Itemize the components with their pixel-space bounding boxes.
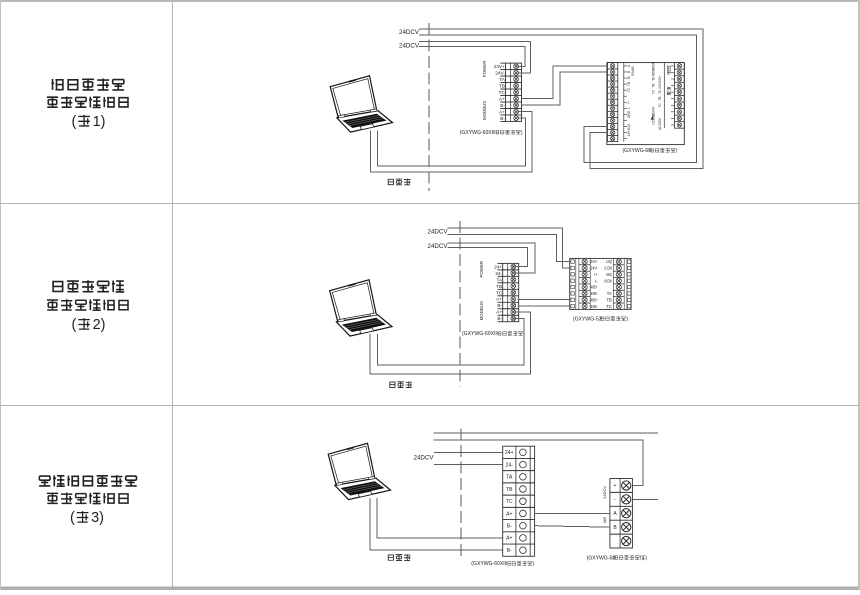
svg-text:A+: A+ [496,297,502,302]
svg-text:TA: TA [506,475,513,481]
svg-text:485+: 485+ [590,285,598,290]
svg-text:TA: TA [496,277,503,282]
svg-text:MODBUS: MODBUS [482,101,487,120]
svg-text:(: ( [70,510,75,526]
svg-text:HCOM: HCOM [604,278,612,283]
svg-text:): ) [645,555,647,561]
svg-text:A+: A+ [506,536,512,542]
svg-text:TC: TC [506,499,513,505]
svg-text:485+: 485+ [590,297,598,302]
svg-text:): ) [676,148,678,154]
svg-text:POWER: POWER [479,261,484,278]
svg-text:485B: 485B [652,69,656,76]
svg-text:I+: I+ [594,272,598,277]
svg-text:24DCV: 24DCV [399,29,420,36]
svg-text:): ) [533,561,535,567]
svg-text:POWER: POWER [482,61,487,78]
svg-text:MODBUS: MODBUS [479,301,484,320]
svg-text:485: 485 [602,516,607,523]
svg-text:24V-: 24V- [627,123,631,130]
svg-text:+: + [614,483,617,489]
svg-text:24DCV: 24DCV [414,454,435,461]
svg-text:24DCV: 24DCV [428,228,449,235]
svg-text:TC: TC [627,87,631,92]
svg-text:(: ( [71,317,76,333]
svg-text:I+: I+ [627,101,631,104]
svg-text:24+: 24+ [494,264,502,269]
svg-text:TB: TB [506,487,513,493]
svg-text:TA: TA [499,77,506,82]
svg-text:AC220V: AC220V [658,117,662,130]
svg-text:B-: B- [497,303,502,308]
svg-text:24V-: 24V- [590,266,598,271]
svg-text:TC: TC [658,102,662,107]
svg-text:B-: B- [500,116,505,121]
svg-text:2): 2) [93,317,106,333]
svg-text:24DCV: 24DCV [399,43,420,50]
svg-text:(GXYWG-60XII: (GXYWG-60XII [471,561,506,567]
svg-text:24-: 24- [495,271,502,276]
svg-text:24DCV: 24DCV [428,243,449,250]
svg-text:GND: GND [627,110,631,118]
svg-text:TB: TB [627,82,631,86]
svg-text:(: ( [71,114,76,130]
svg-text:24V+: 24V+ [658,75,662,83]
svg-text:LNQ: LNQ [606,259,612,264]
svg-text:): ) [521,130,523,136]
svg-text:TC: TC [606,304,612,309]
svg-text:TA: TA [607,291,612,296]
svg-text:(GXYWG-60: (GXYWG-60 [622,148,651,154]
svg-text:24V-: 24V- [495,71,505,76]
svg-text:I-: I- [627,107,631,109]
svg-text:TC: TC [652,89,656,94]
svg-text:24-: 24- [506,462,514,468]
svg-text:RS485: RS485 [631,66,635,76]
svg-text:24V+: 24V+ [590,259,598,264]
svg-text:TC: TC [499,90,506,95]
svg-text:A+: A+ [496,310,502,315]
svg-text:TB: TB [496,284,502,289]
svg-text:B-: B- [507,548,512,554]
svg-text:TB: TB [652,84,656,88]
svg-text:1): 1) [93,114,106,130]
svg-text:A+: A+ [499,109,505,114]
svg-text:(GXYWG-60XII: (GXYWG-60XII [462,331,497,337]
svg-text:TB: TB [658,97,662,101]
svg-text:24+: 24+ [505,450,514,456]
svg-text:24DCV: 24DCV [602,486,607,499]
svg-text:LCOM: LCOM [604,266,612,271]
svg-text:24V+: 24V+ [494,64,505,69]
svg-text:A+: A+ [499,96,505,101]
svg-text:B-: B- [507,523,512,529]
svg-text:485-: 485- [590,304,598,309]
svg-text:TC: TC [496,290,503,295]
svg-text:B-: B- [497,316,502,321]
svg-text:): ) [626,316,628,322]
svg-text:TB: TB [499,83,505,88]
svg-text:(GXYWG-58: (GXYWG-58 [587,555,616,561]
svg-text:(GXYWG-52: (GXYWG-52 [573,316,602,322]
svg-text:3): 3) [91,510,104,526]
svg-text:24V-: 24V- [658,82,662,89]
svg-text:485-: 485- [590,291,598,296]
svg-text:A+: A+ [506,511,512,517]
svg-text:B-: B- [500,103,505,108]
svg-text:24V+: 24V+ [627,129,631,137]
svg-text:(GXYWG-60XII: (GXYWG-60XII [460,130,495,136]
svg-text:HNQ: HNQ [606,272,612,277]
svg-text:485A: 485A [652,61,656,69]
svg-text:TB: TB [606,297,612,302]
